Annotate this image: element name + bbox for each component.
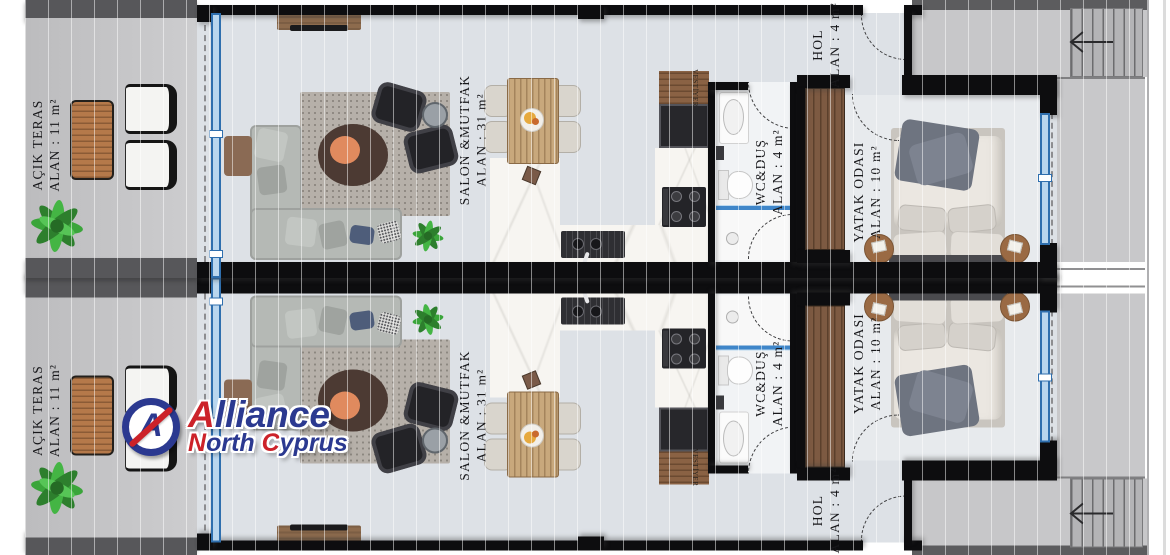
sofa-cushion: [284, 307, 317, 338]
room-name: YATAK ODASI: [850, 142, 867, 243]
wall-hall-right: [904, 480, 912, 545]
wall-center-party: [197, 278, 1057, 294]
sofa-cushion: [256, 164, 288, 196]
floor-plan: VESTİYER: [0, 0, 1170, 555]
plant: [28, 458, 86, 518]
vanity-basin: [723, 99, 744, 135]
bed-pillow: [947, 204, 997, 235]
staircase: [1070, 478, 1143, 547]
sofa-cushion-navy: [349, 224, 375, 245]
wall-wardrobe-side: [797, 88, 805, 252]
sofa-ottoman: [224, 136, 252, 176]
wall-bathroom-right: [790, 82, 797, 262]
room-label-wc: WC&DUŞ ALAN : 4 m²: [751, 97, 787, 247]
sofa-cushion: [284, 216, 317, 247]
refrigerator: [659, 407, 709, 451]
wall-window-pier-bottom: [1040, 243, 1057, 278]
room-name: WC&DUŞ: [752, 350, 769, 416]
room-area: ALAN : 4 m²: [769, 129, 786, 215]
agency-watermark: A Alliance North Cyprus: [122, 398, 348, 456]
logo-letter: N: [188, 429, 206, 457]
logo-word: yprus: [280, 429, 348, 457]
page-edge-line: [1163, 0, 1166, 555]
terrace-center-wall-band: [25, 258, 197, 278]
window-mullion: [209, 250, 223, 258]
closet-label: VESTİYER: [691, 448, 699, 486]
side-yard-line: [1057, 268, 1145, 270]
terrace-chair: [125, 84, 177, 134]
room-area: ALAN : 10 m²: [867, 145, 884, 239]
staircase: [1070, 8, 1143, 77]
unit-top: VESTİYER: [0, 0, 1170, 278]
stove-burner: [689, 333, 700, 344]
side-yard-line: [1057, 285, 1145, 287]
window-mullion: [1038, 373, 1052, 381]
sofa-cushion: [318, 220, 349, 251]
logo-word: orth: [206, 429, 262, 457]
room-label-bedroom: YATAK ODASI ALAN : 10 m²: [849, 288, 885, 438]
stairs-direction-arrow: [1065, 500, 1117, 526]
room-area: ALAN : 31 m²: [473, 368, 490, 462]
room-area: ALAN : 10 m²: [867, 316, 884, 410]
wall-center-party: [197, 262, 1057, 278]
stove-knobs: [663, 330, 668, 366]
room-area: ALAN : 4 m²: [769, 340, 786, 426]
agency-name-line1: Alliance: [188, 398, 348, 431]
logo-letter: C: [262, 429, 280, 457]
room-name: YATAK ODASI: [850, 313, 867, 414]
room-name: HOL: [809, 494, 826, 525]
coffee-table-tray: [330, 136, 360, 164]
tv-screen: [290, 25, 348, 31]
stove-burner: [671, 191, 682, 202]
wall-bathroom-top: [708, 465, 748, 473]
sofa-cushion: [256, 359, 288, 391]
refrigerator: [659, 104, 709, 148]
entry-closet: [659, 451, 709, 484]
stove-burner: [671, 333, 682, 344]
terrace-sliding-window: [211, 13, 221, 278]
wall-wardrobe-cap-bottom: [797, 292, 850, 305]
stove-burner: [689, 353, 700, 364]
agency-name-line2: North Cyprus: [188, 431, 348, 456]
room-area: ALAN : 4 m²: [826, 467, 843, 553]
sofa-cushion: [253, 127, 289, 163]
sink-basin: [590, 238, 602, 250]
entry-closet: [659, 71, 709, 104]
stairs-direction-arrow: [1065, 29, 1117, 55]
wall-hall-right: [904, 10, 912, 75]
window-mullion: [209, 130, 223, 138]
terrace-table: [70, 375, 114, 455]
sink-basin: [590, 305, 602, 317]
plant: [28, 196, 86, 256]
plant: [410, 301, 446, 337]
terrace-outer-wall-band: [25, 535, 197, 555]
sink-basin: [572, 238, 584, 250]
room-label-bedroom: YATAK ODASI ALAN : 10 m²: [849, 117, 885, 267]
wall-kitchen-divider: [708, 82, 715, 262]
wall-top: [197, 5, 863, 15]
terrace-table: [70, 100, 114, 180]
shower-drain: [726, 310, 739, 323]
bed-pillow: [897, 204, 947, 234]
room-name: AÇIK TERAS: [29, 100, 46, 191]
bed-headboard: [889, 293, 1007, 300]
closet-label: VESTİYER: [691, 69, 699, 107]
terrace-center-wall-band: [25, 278, 197, 298]
room-name: SALON &MUTFAK: [456, 350, 473, 480]
side-yard-wall-edge: [1057, 77, 1145, 79]
wall-top-pier: [578, 536, 604, 550]
wall-window-pier-top: [1040, 75, 1057, 115]
stove-burner: [671, 211, 682, 222]
stove-cooktop: [662, 328, 706, 368]
wall-bedroom-top: [902, 75, 1057, 95]
room-name: AÇIK TERAS: [29, 365, 46, 456]
plate-food: [532, 118, 539, 125]
plot-boundary-line: [1147, 0, 1149, 555]
room-area: ALAN : 11 m²: [46, 98, 63, 191]
terrace-overhang-dashes: [204, 15, 206, 262]
room-area: ALAN : 11 m²: [46, 363, 63, 456]
wall-wardrobe-cap-bottom: [797, 250, 850, 263]
stove-burner: [689, 211, 700, 222]
sofa-cushion: [318, 305, 349, 336]
wall-bathroom-right: [790, 293, 797, 473]
toiletry-shelf: [716, 146, 724, 160]
bed-pillow: [947, 321, 997, 352]
room-name: SALON &MUTFAK: [456, 75, 473, 205]
sofa-cushion-navy: [349, 309, 375, 330]
side-table: [422, 102, 448, 128]
side-yard-floor: [1057, 79, 1145, 262]
window-mullion: [209, 297, 223, 305]
stove-burner: [689, 191, 700, 202]
window-mullion: [1038, 174, 1052, 182]
room-name: WC&DUŞ: [752, 139, 769, 205]
toilet-bowl: [727, 171, 753, 199]
room-label-wc: WC&DUŞ ALAN : 4 m²: [751, 308, 787, 458]
room-area: ALAN : 4 m²: [826, 2, 843, 88]
sink-basin: [572, 305, 584, 317]
room-area: ALAN : 31 m²: [473, 93, 490, 187]
wall-top-pier: [578, 5, 604, 19]
shower-drain: [726, 232, 739, 245]
side-yard-floor: [1057, 293, 1145, 476]
wall-window-pier-top: [1040, 440, 1057, 480]
wall-bedroom-top: [902, 460, 1057, 480]
room-label-hall: HOL ALAN : 4 m²: [808, 435, 844, 555]
wall-top: [197, 540, 863, 550]
agency-logo-icon: A: [122, 398, 180, 456]
tv-screen: [290, 524, 348, 530]
room-label-living: SALON &MUTFAK ALAN : 31 m²: [455, 65, 491, 215]
plate-food: [532, 430, 539, 437]
vanity-basin: [723, 420, 744, 456]
stove-burner: [671, 353, 682, 364]
toilet-bowl: [727, 356, 753, 384]
wall-bathroom-top: [708, 82, 748, 90]
wall-window-pier-bottom: [1040, 278, 1057, 313]
side-table: [422, 427, 448, 453]
wall-wardrobe-side: [797, 303, 805, 467]
toiletry-shelf: [716, 395, 724, 409]
bed-headboard: [889, 255, 1007, 262]
room-name: HOL: [809, 29, 826, 60]
stove-knobs: [663, 189, 668, 225]
agency-logo-text: Alliance North Cyprus: [188, 398, 348, 456]
terrace-chair: [125, 140, 177, 190]
room-label-living: SALON &MUTFAK ALAN : 31 m²: [455, 340, 491, 490]
wall-kitchen-divider: [708, 293, 715, 473]
room-label-hall: HOL ALAN : 4 m²: [808, 0, 844, 120]
terrace-outer-wall-band: [25, 0, 197, 20]
plant: [410, 218, 446, 254]
bed-pillow: [897, 321, 947, 351]
